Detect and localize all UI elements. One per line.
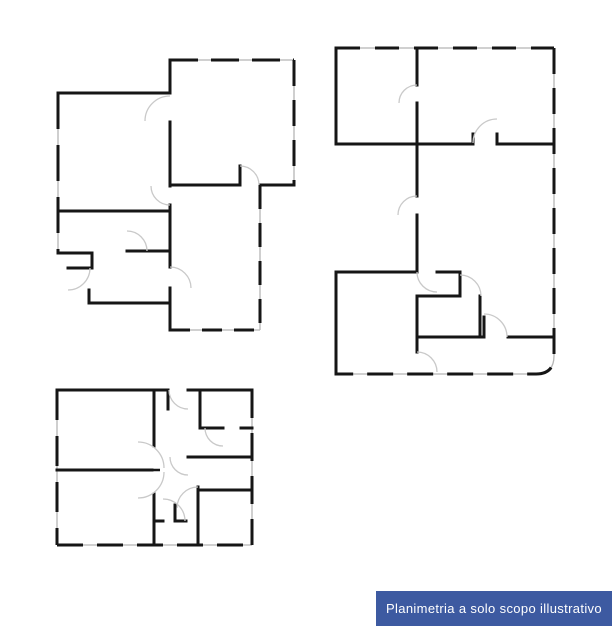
floor-plans-canvas <box>0 0 616 626</box>
door-swing-arc <box>473 119 497 143</box>
door-swing-arc <box>417 272 437 292</box>
door-swing-arc <box>170 457 188 475</box>
plan-upper-left <box>58 60 294 330</box>
door-swing-arc <box>138 442 164 468</box>
exterior-wall <box>336 48 554 374</box>
plan-lower-left <box>57 390 252 545</box>
door-swing-arc <box>170 267 191 288</box>
door-swing-arc <box>138 472 164 498</box>
door-swing-arc <box>399 85 417 103</box>
door-swing-arc <box>127 231 147 251</box>
door-swing-arc <box>68 268 90 290</box>
door-swing-arc <box>484 314 507 337</box>
door-swing-arc <box>205 428 223 446</box>
disclaimer-label: Planimetria a solo scopo illustrativo <box>386 601 602 616</box>
plan-right <box>336 48 554 374</box>
door-swing-arc <box>398 196 417 215</box>
door-swing-arc <box>169 390 188 409</box>
floor-plan-page: Planimetria a solo scopo illustrativo <box>0 0 616 626</box>
door-swing-arc <box>151 186 170 205</box>
door-swing-arc <box>240 166 259 185</box>
door-swing-arc <box>460 275 481 296</box>
window-band <box>336 48 554 374</box>
door-swing-arc <box>145 96 170 121</box>
disclaimer-banner: Planimetria a solo scopo illustrativo <box>376 591 612 626</box>
door-swing-arc <box>417 352 437 372</box>
door-swing-arc <box>177 487 198 508</box>
